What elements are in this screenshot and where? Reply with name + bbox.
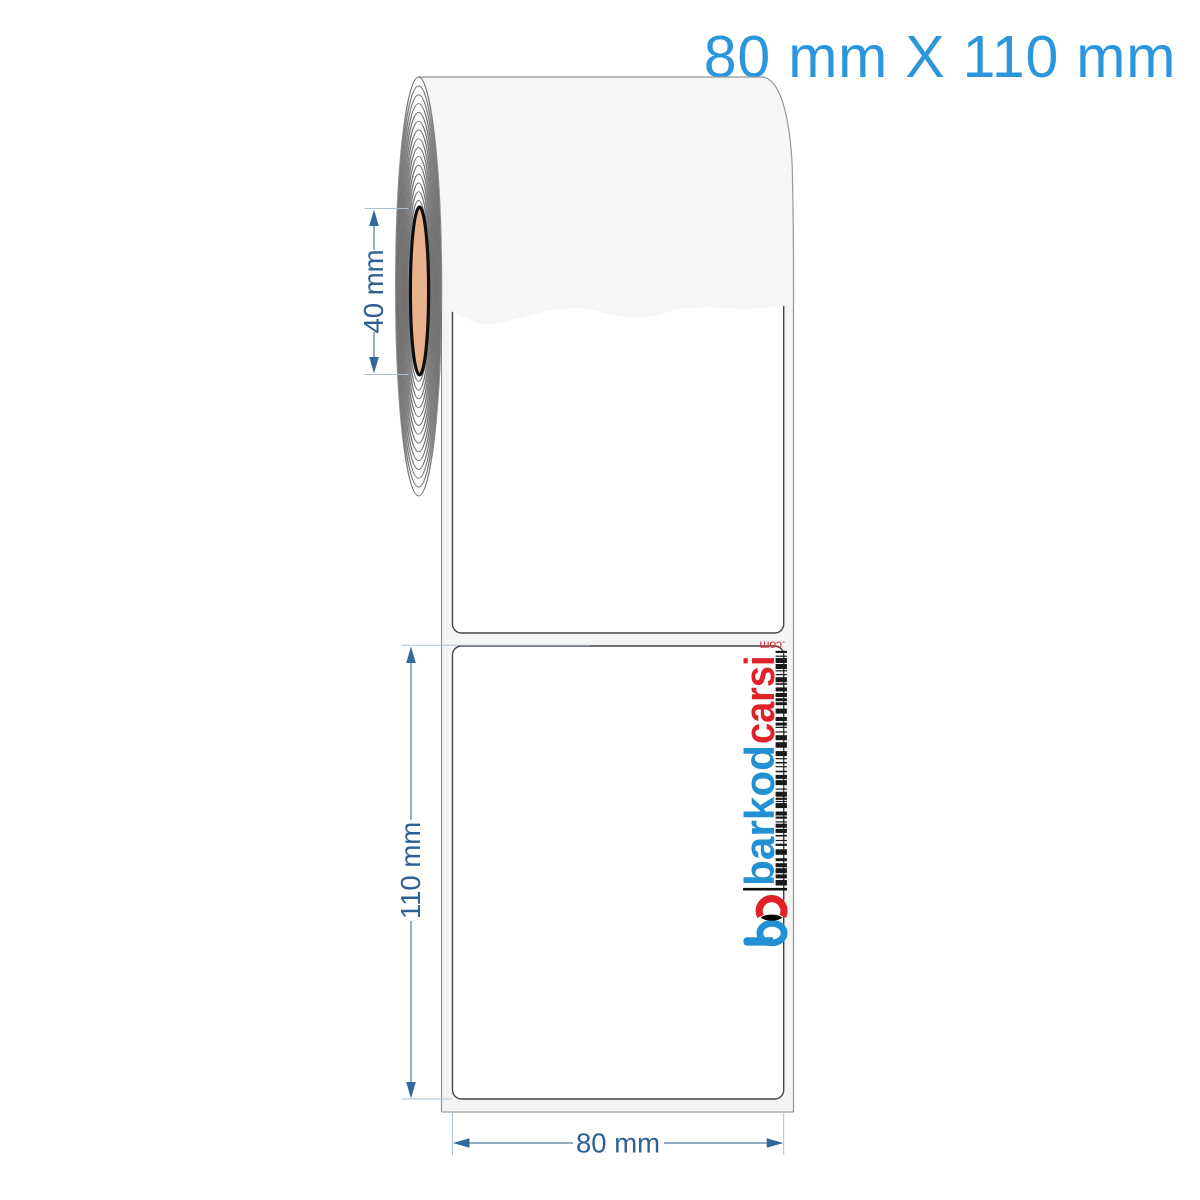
svg-text:80 mm: 80 mm <box>576 1128 660 1159</box>
svg-text:110 mm: 110 mm <box>395 822 426 919</box>
svg-text:.com: .com <box>760 639 786 651</box>
svg-text:40 mm: 40 mm <box>358 249 389 333</box>
svg-text:80 mm X 110 mm: 80 mm X 110 mm <box>704 24 1176 90</box>
